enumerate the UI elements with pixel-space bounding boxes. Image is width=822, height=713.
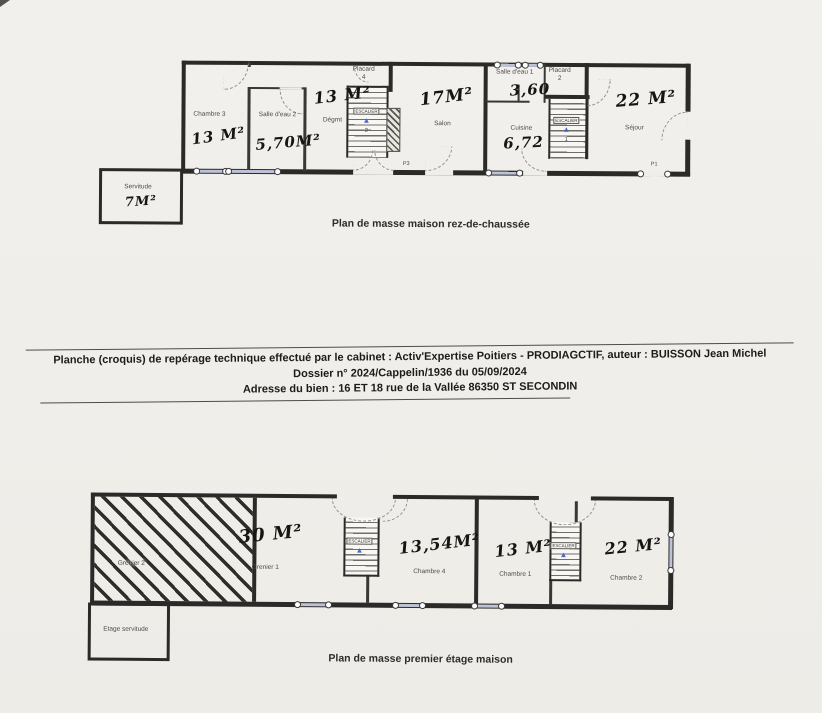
room-label: Chambre 2 <box>610 575 642 582</box>
room-label: Grenier 2 <box>118 560 145 567</box>
stair-label: escalier <box>346 537 372 544</box>
hatched-area <box>94 497 253 602</box>
wall <box>90 600 672 609</box>
first-floor-caption: Plan de masse premier étage maison <box>328 652 513 665</box>
room-label: Chambre 1 <box>499 571 531 578</box>
area-annotation: 22 M² <box>604 534 663 558</box>
stair-direction-arrow: ▲ <box>355 547 363 555</box>
window <box>669 535 672 570</box>
window <box>475 604 501 607</box>
scanned-floor-plan-sheet: escalier ▲ 2 escalier ▲ 1 Chamb <box>0 0 822 713</box>
area-annotation: 13 M² <box>494 536 553 561</box>
room-label: Chambre 4 <box>413 568 445 575</box>
area-annotation: 13,54M² <box>398 530 481 558</box>
window <box>396 603 422 606</box>
wall <box>252 498 257 602</box>
wall <box>474 500 478 604</box>
first-floor-plan: escalier ▲ escalier ▲ Grenier 2 Grenier … <box>0 0 822 713</box>
stair-label: escalier <box>550 542 576 549</box>
room-label: Etage servitude <box>103 626 148 633</box>
wall <box>549 579 552 604</box>
door-arc <box>383 499 408 522</box>
window <box>298 603 328 606</box>
room-label: Grenier 1 <box>252 564 279 571</box>
stair-direction-arrow: ▲ <box>559 551 567 559</box>
door-arc <box>534 500 596 525</box>
wall <box>366 575 369 603</box>
